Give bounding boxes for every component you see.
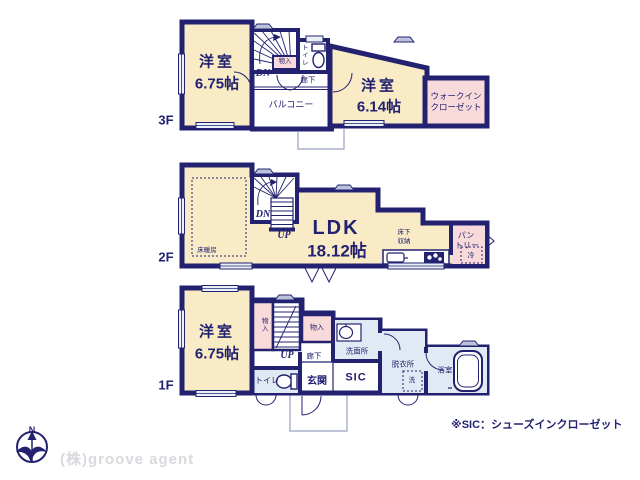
floor1-label: 1F [158,379,173,392]
floor-plan-drawing [0,0,640,480]
floor1-closet-left-label: 物入 [260,318,267,333]
floor3-toilet-label: トイレ [300,44,307,67]
vent-icon [253,24,273,29]
kitchen-sink-icon [387,253,404,262]
floor2-stairs-dn-label: DN [256,210,270,220]
floor1-stairs-up-label: UP [280,351,293,361]
vent-icon [275,295,295,300]
floor2-stairs-up-label: UP [277,231,290,241]
floor1-bedroom-name: 洋室 [199,325,235,340]
vent-icon [334,185,354,190]
vent-icon [394,37,414,42]
floor1-bedroom-room [182,288,252,393]
floor2-underfloor-label-1: 床下 [398,230,411,237]
floor1-dressing-label: 脱衣所 [392,360,415,368]
compass-north-label: N [29,425,36,435]
floor3-balcony-label: バルコニー [269,101,314,110]
floor2-heating-label: 床暖房 [197,248,217,255]
stove-icon [424,252,444,263]
floor3-closet-label: 物入 [279,59,292,66]
watermark-text: (株)groove agent [60,448,194,469]
floor1-closet-hall-label: 物入 [310,325,324,332]
floor3-bedroom-right-name: 洋室 [361,79,397,94]
floor3-bedroom-right-size: 6.14帖 [357,100,401,115]
floor3-bedroom-left-name: 洋室 [199,55,235,70]
floor2-ldk-name: LDK [312,218,359,238]
floor3-wic-label-2: クローゼット [430,103,481,112]
floor3-stairs-dn-label: DN [256,69,270,79]
floor1-bedroom-size: 6.75帖 [195,347,239,362]
floor1-washroom-label: 洗面所 [346,347,369,355]
floor2-label: 2F [158,251,173,264]
floor1-stair-treads [273,306,300,348]
floor2-balcony-door-marks [305,268,336,282]
toilet-icon-3f [312,44,325,68]
floor3-toilet-window [306,36,323,42]
floor-plan-page: 洋室 6.75帖 DN 物入 トイレ 廊下 バルコニー 洋室 6.14帖 ウォー… [0,0,640,480]
floor1-bathroom-label: 浴室 [438,366,453,374]
floor1-hallway-label: 廊下 [307,352,322,360]
toilet-icon-1f [277,374,298,389]
floor3-bedroom-left-size: 6.75帖 [195,77,239,92]
vent-icon [254,169,274,174]
floor1-porch-outline [290,393,347,431]
floor2-pantry-label-2: トリー [455,242,479,250]
floor1-entrance-label: 玄関 [307,377,327,387]
floor2-fridge-label: 冷 [468,253,475,260]
floor1-washer-label: 洗 [409,378,416,385]
floor2-ldk-size: 18.12帖 [307,243,367,260]
floor3-label: 3F [158,114,173,127]
floor2-pantry-label-1: パン [458,232,474,240]
floor3-lower-outline [298,129,344,149]
sink-icon [337,324,361,341]
floor3-wic-label-1: ウォークイン [430,92,481,101]
vent-icon [459,341,479,346]
compass-icon [16,431,47,462]
floor2-underfloor-label-2: 収納 [398,239,411,246]
floor1-sic-label: SIC [345,373,366,384]
sic-note-text: ※SIC：シューズインクローゼット [451,416,622,432]
floor3-hallway-label: 廊下 [301,76,316,84]
floor1-toilet-label: トイレ [255,377,279,385]
